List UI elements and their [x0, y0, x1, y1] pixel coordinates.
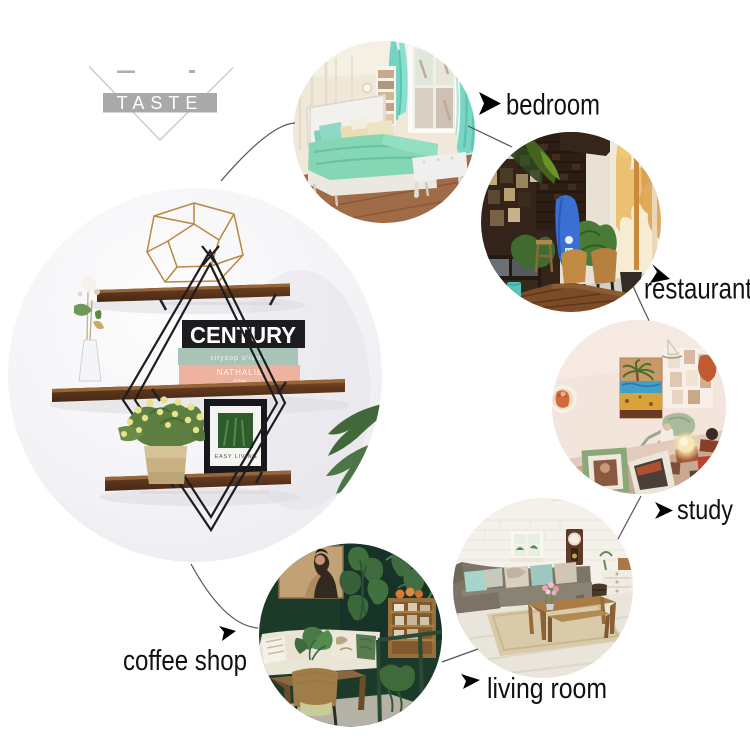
svg-text:CENTURY: CENTURY [190, 322, 296, 348]
svg-text:bedroom: bedroom [506, 89, 600, 122]
svg-text:NATHALIE: NATHALIE [217, 368, 264, 377]
svg-text:study: study [677, 494, 733, 525]
svg-text:living room: living room [487, 673, 607, 705]
svg-text:restaurant: restaurant [644, 273, 750, 306]
svg-text:achour: achour [233, 378, 247, 383]
svg-text:EASY LIVING: EASY LIVING [215, 454, 258, 460]
svg-text:TASTE: TASTE [117, 93, 204, 113]
svg-text:coffee shop: coffee shop [123, 645, 247, 677]
